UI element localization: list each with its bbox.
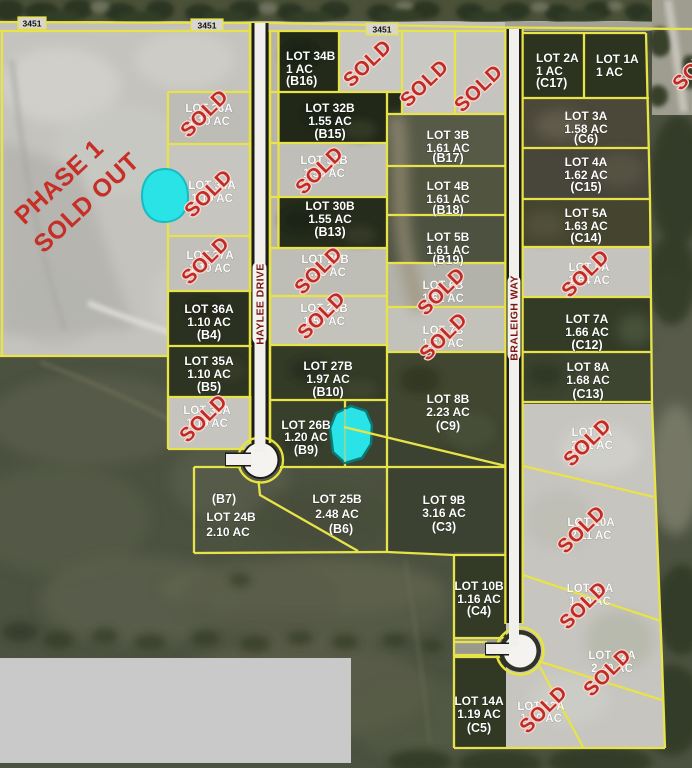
svg-text:2.23 AC: 2.23 AC [426,405,470,419]
svg-text:(B4): (B4) [197,328,221,342]
svg-text:LOT 27B: LOT 27B [303,359,353,373]
svg-text:LOT 4B: LOT 4B [427,179,470,193]
svg-text:LOT 14A: LOT 14A [454,694,504,708]
svg-text:(C9): (C9) [436,419,460,433]
svg-text:1.20 AC: 1.20 AC [284,430,328,444]
svg-text:(B9): (B9) [294,443,318,457]
svg-text:LOT 3A: LOT 3A [565,109,608,123]
svg-text:HAYLEE DRIVE: HAYLEE DRIVE [255,263,267,344]
svg-text:(B13): (B13) [314,225,345,239]
svg-text:3451: 3451 [373,25,392,35]
svg-text:LOT 8B: LOT 8B [427,392,470,406]
svg-text:BRALEIGH WAY: BRALEIGH WAY [509,275,521,361]
svg-text:(C4): (C4) [467,604,491,618]
svg-text:(C14): (C14) [570,231,601,245]
svg-text:1.19 AC: 1.19 AC [457,707,501,721]
svg-text:1.97 AC: 1.97 AC [306,372,350,386]
svg-text:(B17): (B17) [432,151,463,165]
svg-text:(C3): (C3) [432,520,456,534]
svg-text:3451: 3451 [23,19,42,29]
svg-text:LOT 4A: LOT 4A [565,155,608,169]
svg-text:LOT 3B: LOT 3B [427,128,470,142]
svg-text:1.10 AC: 1.10 AC [187,367,231,381]
svg-text:(C15): (C15) [570,180,601,194]
svg-text:1.66 AC: 1.66 AC [565,325,609,339]
svg-text:LOT 1A: LOT 1A [596,52,639,66]
svg-text:2.48 AC: 2.48 AC [315,507,359,521]
svg-text:(C17): (C17) [536,76,567,90]
svg-text:LOT 32B: LOT 32B [305,101,355,115]
svg-text:LOT 36A: LOT 36A [184,302,234,316]
svg-text:LOT 25B: LOT 25B [312,492,362,506]
svg-text:(C5): (C5) [467,721,491,735]
svg-text:2.10 AC: 2.10 AC [206,525,250,539]
svg-text:1 AC: 1 AC [596,65,623,79]
svg-text:LOT 35A: LOT 35A [184,354,234,368]
svg-text:(B19): (B19) [432,253,463,267]
svg-text:1.55 AC: 1.55 AC [308,212,352,226]
svg-text:(B7): (B7) [212,492,236,506]
svg-text:LOT 5B: LOT 5B [427,230,470,244]
svg-text:(B6): (B6) [329,522,353,536]
svg-text:LOT 8A: LOT 8A [567,360,610,374]
svg-text:1.55 AC: 1.55 AC [308,114,352,128]
svg-text:LOT 9B: LOT 9B [423,493,466,507]
svg-text:(C6): (C6) [574,132,598,146]
svg-text:LOT 24B: LOT 24B [206,510,256,524]
svg-text:(B16): (B16) [286,74,317,88]
svg-text:LOT 10B: LOT 10B [454,579,504,593]
svg-text:3451: 3451 [198,21,217,31]
svg-text:(B15): (B15) [314,127,345,141]
svg-text:1.10 AC: 1.10 AC [187,315,231,329]
svg-text:(B18): (B18) [432,203,463,217]
svg-text:LOT 7A: LOT 7A [566,312,609,326]
svg-text:(B10): (B10) [312,385,343,399]
svg-text:LOT 2A: LOT 2A [536,51,579,65]
svg-text:LOT 5A: LOT 5A [565,206,608,220]
svg-text:(C13): (C13) [572,387,603,401]
svg-text:(C12): (C12) [571,338,602,352]
svg-text:LOT 34B: LOT 34B [286,49,336,63]
svg-text:3.16 AC: 3.16 AC [422,506,466,520]
svg-text:LOT 30B: LOT 30B [305,199,355,213]
svg-text:1.68 AC: 1.68 AC [566,373,610,387]
